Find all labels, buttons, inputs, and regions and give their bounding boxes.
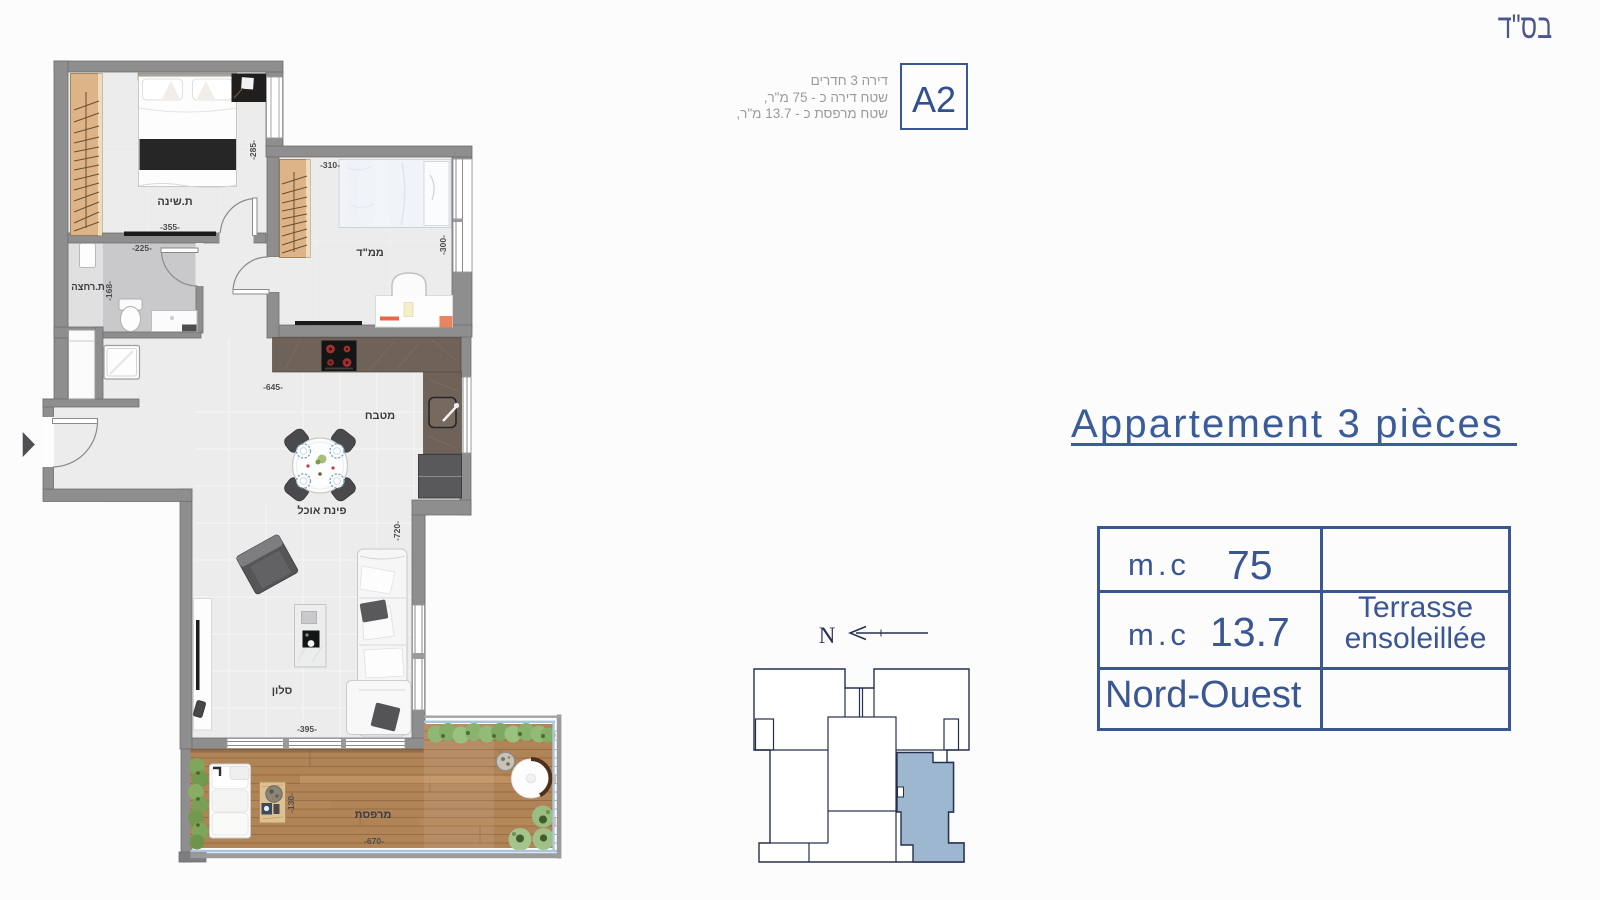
- svg-text:ממ"ד: ממ"ד: [356, 247, 384, 259]
- svg-text:-645-: -645-: [263, 382, 283, 392]
- svg-text:ת.שינה: ת.שינה: [157, 196, 192, 208]
- svg-text:-720-: -720-: [392, 521, 402, 541]
- svg-text:מטבח: מטבח: [365, 410, 395, 422]
- svg-text:-168-: -168-: [104, 281, 114, 301]
- svg-text:-225-: -225-: [132, 243, 152, 253]
- svg-text:ת.רחצה: ת.רחצה: [71, 282, 105, 293]
- svg-text:מרפסת: מרפסת: [355, 809, 392, 821]
- svg-text:-355-: -355-: [160, 222, 180, 232]
- svg-text:פינת אוכל: פינת אוכל: [297, 504, 346, 517]
- svg-text:-310-: -310-: [320, 160, 340, 170]
- svg-text:-285-: -285-: [248, 140, 258, 160]
- svg-text:סלון: סלון: [272, 684, 293, 697]
- svg-text:-130-: -130-: [286, 793, 296, 813]
- svg-text:-670-: -670-: [364, 836, 384, 846]
- svg-text:-395-: -395-: [297, 724, 317, 734]
- svg-text:-300-: -300-: [438, 235, 448, 255]
- svg-text:N: N: [819, 623, 836, 648]
